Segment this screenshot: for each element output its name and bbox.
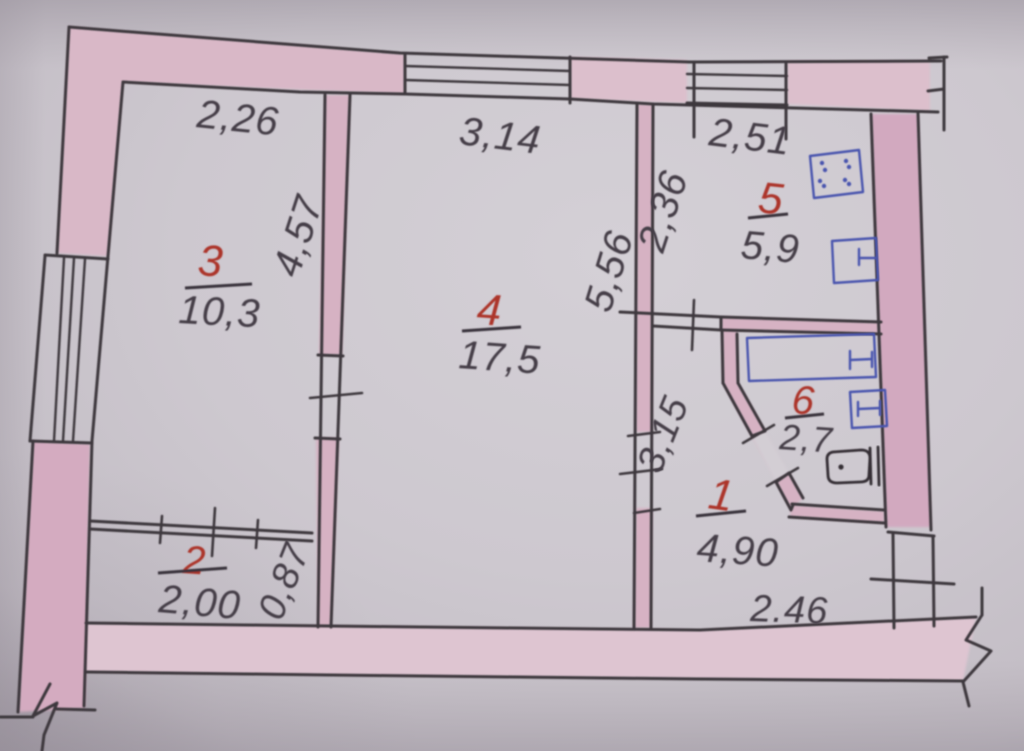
svg-text:4,90: 4,90 xyxy=(695,526,780,576)
svg-text:3: 3 xyxy=(196,236,224,287)
svg-text:10,3: 10,3 xyxy=(178,288,262,336)
svg-text:2.46: 2.46 xyxy=(749,588,829,633)
svg-text:2,00: 2,00 xyxy=(156,577,242,628)
svg-text:2,7: 2,7 xyxy=(777,416,835,461)
svg-text:5,9: 5,9 xyxy=(739,223,801,272)
svg-text:2: 2 xyxy=(180,538,206,584)
svg-text:2,26: 2,26 xyxy=(194,92,281,144)
svg-text:17,5: 17,5 xyxy=(457,333,542,383)
